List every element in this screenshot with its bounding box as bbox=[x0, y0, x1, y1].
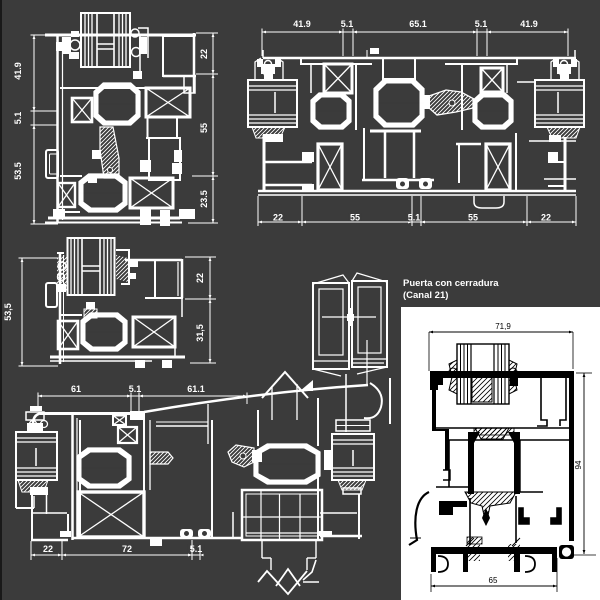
svg-text:65.1: 65.1 bbox=[409, 19, 427, 29]
svg-text:53,5: 53,5 bbox=[3, 303, 13, 321]
svg-text:55: 55 bbox=[350, 213, 360, 223]
svg-text:55: 55 bbox=[199, 123, 209, 133]
svg-text:94: 94 bbox=[574, 460, 583, 469]
svg-text:5.1: 5.1 bbox=[408, 213, 421, 223]
svg-text:5.1: 5.1 bbox=[475, 19, 488, 29]
svg-text:53.5: 53.5 bbox=[13, 162, 23, 180]
svg-text:22: 22 bbox=[541, 213, 551, 223]
svg-text:22: 22 bbox=[273, 213, 283, 223]
svg-text:55: 55 bbox=[468, 213, 478, 223]
svg-text:23.5: 23.5 bbox=[199, 190, 209, 208]
svg-text:61: 61 bbox=[71, 384, 81, 394]
svg-text:Puerta con cerradura: Puerta con cerradura bbox=[403, 278, 499, 289]
svg-text:41.9: 41.9 bbox=[293, 19, 311, 29]
svg-text:65: 65 bbox=[489, 576, 498, 585]
svg-text:72: 72 bbox=[122, 544, 132, 554]
svg-text:5.1: 5.1 bbox=[129, 384, 142, 394]
svg-text:41.9: 41.9 bbox=[13, 62, 23, 80]
svg-text:(Canal 21): (Canal 21) bbox=[403, 290, 448, 301]
svg-text:22: 22 bbox=[43, 544, 53, 554]
svg-text:41.9: 41.9 bbox=[520, 19, 538, 29]
svg-text:5.1: 5.1 bbox=[341, 19, 354, 29]
svg-text:71,9: 71,9 bbox=[495, 322, 511, 331]
svg-text:61.1: 61.1 bbox=[187, 384, 205, 394]
svg-text:22: 22 bbox=[195, 273, 205, 283]
svg-text:5.1: 5.1 bbox=[13, 112, 23, 125]
svg-text:22: 22 bbox=[199, 49, 209, 59]
svg-text:31,5: 31,5 bbox=[195, 324, 205, 342]
